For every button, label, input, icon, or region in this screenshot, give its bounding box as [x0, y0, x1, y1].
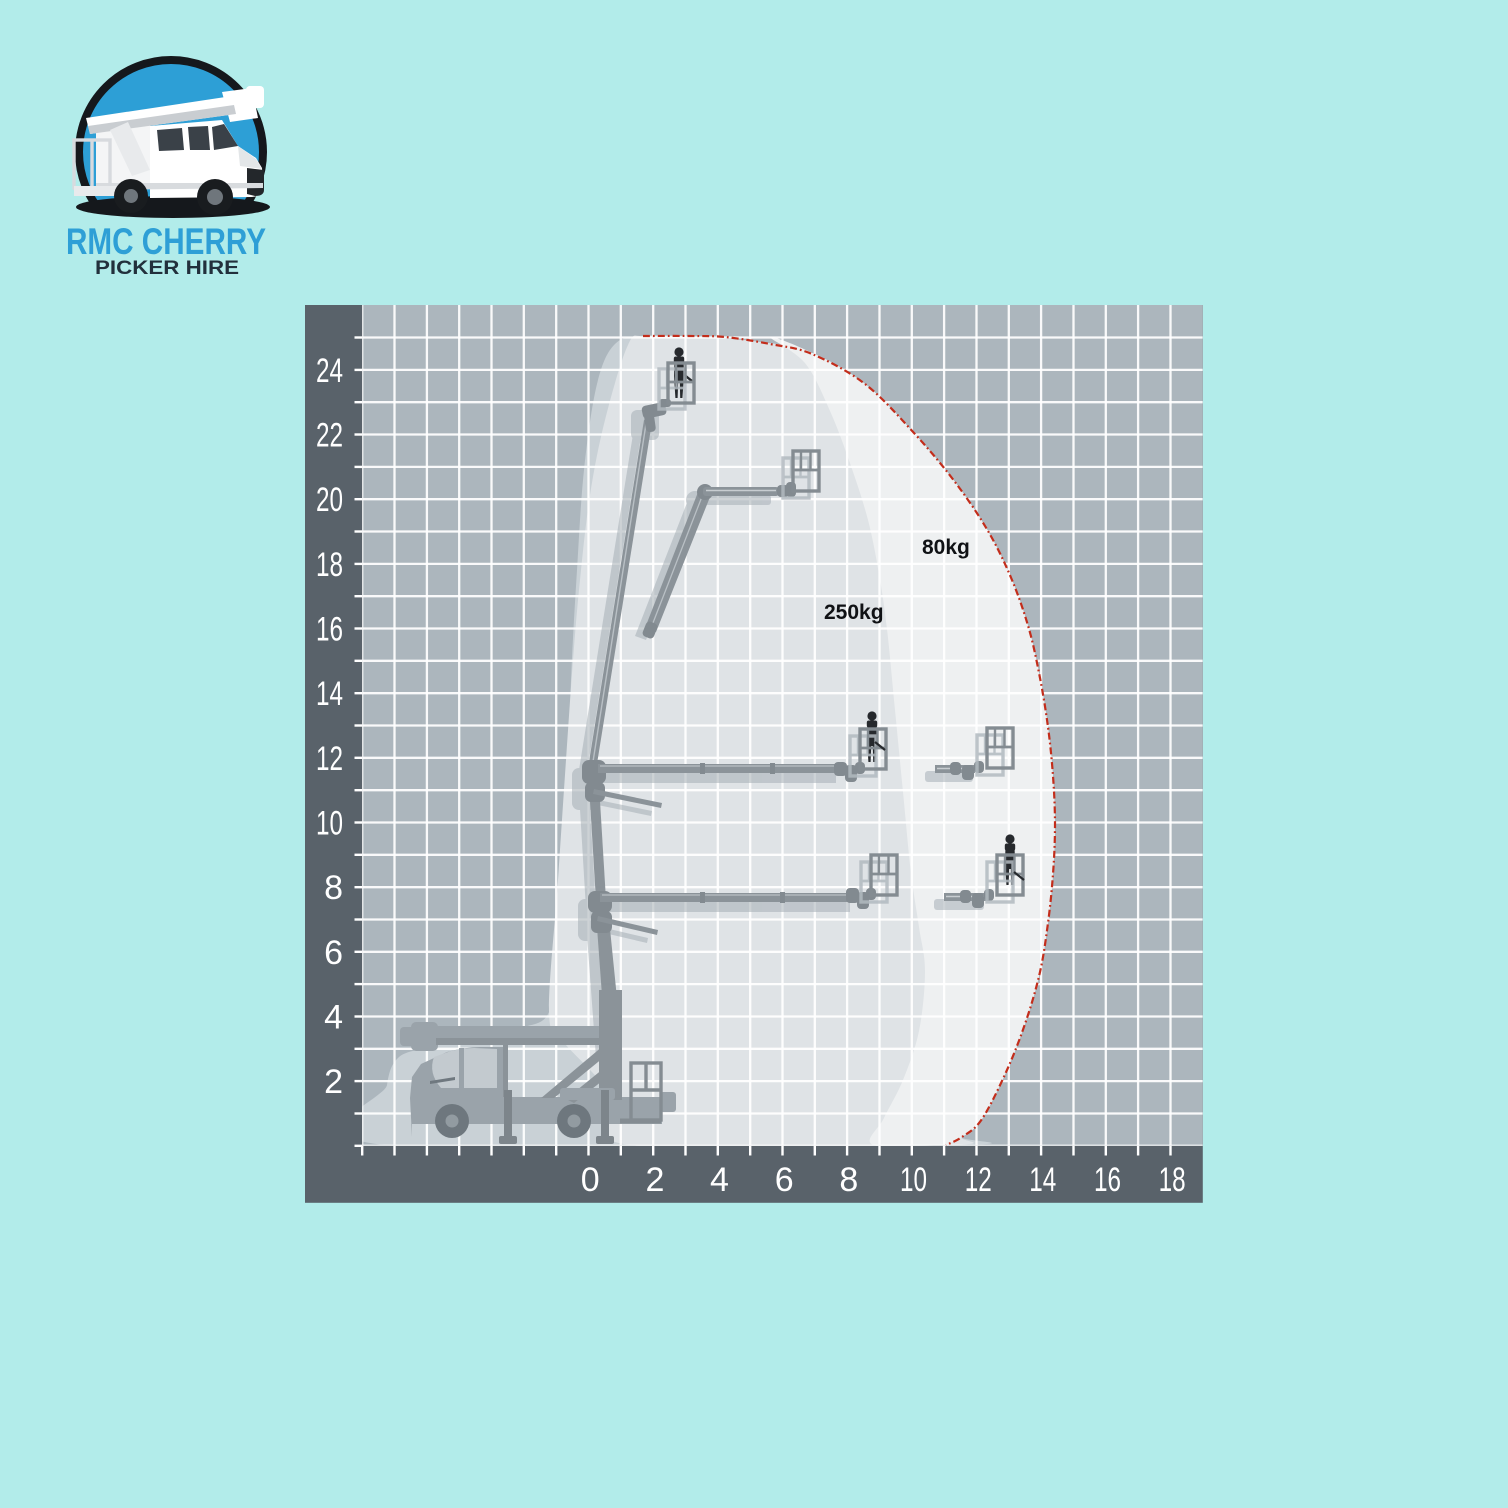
- svg-text:RMC CHERRY: RMC CHERRY: [66, 221, 266, 262]
- svg-text:4: 4: [324, 999, 343, 1037]
- svg-text:80kg: 80kg: [922, 536, 970, 559]
- svg-text:2: 2: [324, 1063, 343, 1101]
- svg-text:10: 10: [316, 805, 343, 843]
- svg-text:6: 6: [775, 1161, 794, 1199]
- svg-text:12: 12: [965, 1161, 992, 1199]
- svg-text:12: 12: [316, 740, 343, 778]
- svg-text:8: 8: [839, 1161, 858, 1199]
- svg-text:0: 0: [581, 1161, 600, 1199]
- svg-text:20: 20: [316, 481, 343, 519]
- svg-text:2: 2: [645, 1161, 664, 1199]
- svg-text:14: 14: [1029, 1161, 1056, 1199]
- svg-text:250kg: 250kg: [824, 601, 884, 624]
- svg-text:4: 4: [710, 1161, 729, 1199]
- svg-text:22: 22: [316, 417, 343, 455]
- svg-text:10: 10: [900, 1161, 927, 1199]
- svg-text:PICKER HIRE: PICKER HIRE: [95, 258, 239, 279]
- svg-text:8: 8: [324, 869, 343, 907]
- svg-text:18: 18: [316, 546, 343, 584]
- svg-text:14: 14: [316, 675, 343, 713]
- svg-text:18: 18: [1159, 1161, 1186, 1199]
- svg-text:16: 16: [1094, 1161, 1121, 1199]
- svg-text:16: 16: [316, 611, 343, 649]
- svg-text:24: 24: [316, 352, 343, 390]
- svg-text:6: 6: [324, 934, 343, 972]
